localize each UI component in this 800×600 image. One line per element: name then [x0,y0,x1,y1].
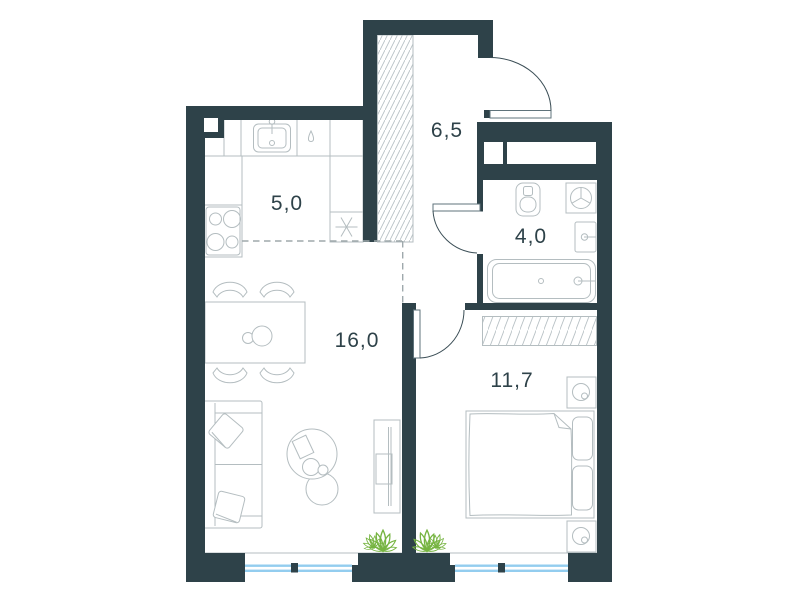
chair-icon [213,282,247,297]
coffee-table-icon [287,429,338,505]
plant-icon [360,530,396,552]
stove-icon [206,207,241,255]
bathroom-door [433,204,483,254]
bathroom-sink-icon [575,222,596,252]
wall-top [363,20,493,35]
room-label-living-room: 16,0 [335,329,380,352]
door-leaf [433,204,480,211]
sofa-pillow [213,491,246,524]
chair-icon [260,282,294,297]
chair-icon [213,368,247,383]
floor-plan-svg: 5,0 6,5 4,0 16,0 11,7 [0,0,800,600]
door-swing-icon [420,310,464,358]
niche-cutout [484,142,503,164]
door-leaf [490,111,551,119]
sofa-icon [203,401,262,528]
pillar-notch [204,118,218,132]
window-icon [245,563,352,573]
nightstand-lamp-icon [567,377,596,408]
door-swing-icon [490,58,551,111]
wall-right-outer [597,122,612,582]
bathtub-icon [488,260,597,303]
wall-bathroom-left-upper [477,180,483,204]
tv-stand-icon [374,420,400,513]
chair-icon [260,368,294,383]
plant-icon [412,530,448,552]
wall-bathroom-top-band [477,122,612,142]
nightstand-lamp-icon [567,521,596,552]
wall-bottom-center-pier-base [352,565,455,582]
room-label-hallway: 6,5 [431,119,463,142]
entrance-door [484,52,551,118]
washing-machine-icon [566,183,596,213]
dining-table-icon [205,282,305,383]
room-label-bedroom: 11,7 [490,369,533,392]
bed-icon [466,411,594,518]
door-leaf [414,310,421,358]
ventilation-shaft-hatch [378,35,414,242]
wall-bottom-center-pier [358,553,450,565]
wall-bottom-left-pier [186,553,245,582]
room-label-kitchen: 5,0 [271,192,303,215]
wall-bathroom-left-lower [477,254,483,306]
wall-kitchen-top [186,106,365,120]
wall-bottom-right-pier [568,553,612,582]
wall-bedroom-top [465,303,612,310]
niche-cutout [507,142,596,164]
wardrobe-hatch [483,317,597,346]
bedroom-door [414,310,465,358]
floor-plan-page: 5,0 6,5 4,0 16,0 11,7 [0,0,800,600]
toilet-icon [516,183,540,216]
door-swing-icon [433,211,477,253]
window-icon [455,563,568,573]
kitchen-sink-icon [254,119,291,152]
wall-shaft-left [363,20,377,242]
room-label-bathroom: 4,0 [515,225,547,248]
wall-left-outer [186,106,205,553]
